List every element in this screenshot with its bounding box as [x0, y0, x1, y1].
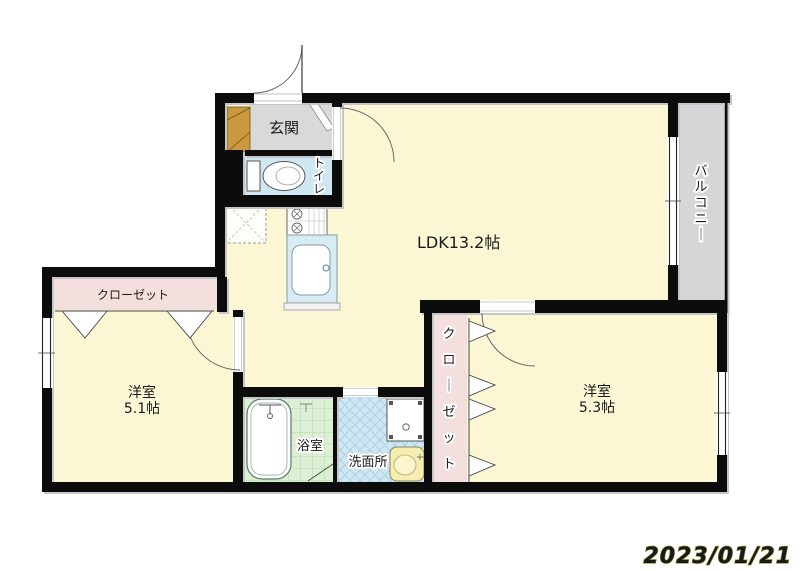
balcony-label: バルコニ｜ — [694, 164, 707, 243]
stove — [287, 207, 327, 235]
bedroom-right-size: 5.3帖 — [579, 400, 615, 416]
date-stamp: 2023/01/21 — [643, 544, 792, 569]
fridge-space — [226, 203, 266, 243]
window-balcony-sliding — [665, 137, 681, 265]
entrance-door-arc — [254, 45, 302, 93]
bathroom-label: 浴室 — [297, 438, 323, 454]
washing-machine — [387, 399, 424, 441]
ldk-label: LDK13.2帖 — [417, 233, 500, 252]
toilet-label: トイレ — [313, 156, 325, 196]
floor-plan: 玄関 トイレ LDK13.2帖 バルコニ｜ クローゼット クロ｜ゼット 洋室 5… — [0, 0, 800, 571]
wash-basin — [390, 447, 424, 481]
floorplan-page: 玄関 トイレ LDK13.2帖 バルコニ｜ クローゼット クロ｜ゼット 洋室 5… — [0, 0, 800, 571]
window-right — [714, 372, 730, 455]
bedroom-left-name: 洋室 — [128, 384, 156, 401]
entrance-label: 玄関 — [269, 119, 299, 137]
window-left — [38, 318, 55, 388]
bedroom-right-name: 洋室 — [583, 383, 611, 400]
toilet-fixture — [247, 161, 305, 191]
closet-left-label: クローゼット — [97, 288, 169, 302]
counter-end — [284, 303, 340, 310]
kitchen-sink — [284, 235, 340, 310]
washroom-label: 洗面所 — [348, 455, 387, 470]
bedroom-left-size: 5.1帖 — [124, 401, 160, 417]
